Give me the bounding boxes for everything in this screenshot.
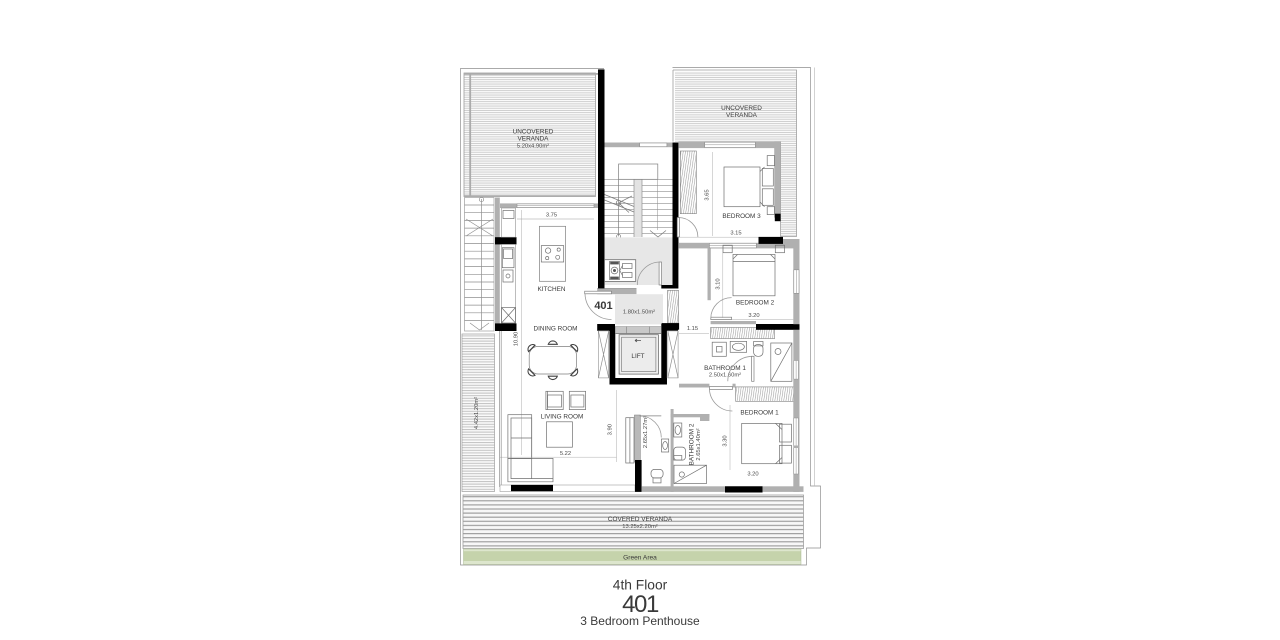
svg-text:BEDROOM 2: BEDROOM 2 xyxy=(736,300,775,307)
svg-text:Green Area: Green Area xyxy=(623,554,657,561)
svg-text:BEDROOM 3: BEDROOM 3 xyxy=(722,213,761,220)
svg-text:2.65x1.40m²: 2.65x1.40m² xyxy=(696,428,702,460)
svg-text:3.20: 3.20 xyxy=(748,313,759,319)
svg-text:4.42x1.20m²: 4.42x1.20m² xyxy=(474,397,480,429)
svg-text:3.15: 3.15 xyxy=(730,231,741,237)
svg-text:5.20x4.90m²: 5.20x4.90m² xyxy=(517,144,549,150)
svg-text:3.65: 3.65 xyxy=(705,189,711,200)
svg-text:VERANDA: VERANDA xyxy=(518,136,550,143)
svg-text:5.22: 5.22 xyxy=(560,451,571,457)
svg-text:LIFT: LIFT xyxy=(631,353,644,360)
svg-text:BEDROOM 1: BEDROOM 1 xyxy=(740,410,779,417)
svg-text:KITCHEN: KITCHEN xyxy=(537,286,565,293)
svg-text:UNCOVERED: UNCOVERED xyxy=(721,105,762,112)
svg-text:3.75: 3.75 xyxy=(546,213,557,219)
svg-text:401: 401 xyxy=(594,300,612,312)
svg-text:3.10: 3.10 xyxy=(716,278,722,289)
svg-text:DINING ROOM: DINING ROOM xyxy=(533,326,577,333)
svg-text:3.20: 3.20 xyxy=(747,472,758,478)
svg-text:1.15: 1.15 xyxy=(687,326,698,332)
svg-text:1.80x1.50m²: 1.80x1.50m² xyxy=(623,310,655,316)
svg-text:3.90: 3.90 xyxy=(608,424,614,435)
svg-text:BATHROOM 1: BATHROOM 1 xyxy=(704,365,746,372)
svg-text:VERANDA: VERANDA xyxy=(726,112,758,119)
svg-text:2.50x1.60m²: 2.50x1.60m² xyxy=(709,372,741,378)
svg-text:3.30: 3.30 xyxy=(723,435,729,446)
svg-text:2.65x1.27m²: 2.65x1.27m² xyxy=(643,416,649,448)
svg-text:LIVING ROOM: LIVING ROOM xyxy=(541,414,584,421)
svg-text:BATHROOM 2: BATHROOM 2 xyxy=(689,423,696,465)
svg-text:3 Bedroom Penthouse: 3 Bedroom Penthouse xyxy=(580,614,700,628)
svg-text:13.25x2.20m²: 13.25x2.20m² xyxy=(622,524,658,530)
svg-text:10.90: 10.90 xyxy=(514,332,520,347)
svg-text:COVERED VERANDA: COVERED VERANDA xyxy=(608,516,673,523)
svg-text:UNCOVERED: UNCOVERED xyxy=(513,129,554,136)
